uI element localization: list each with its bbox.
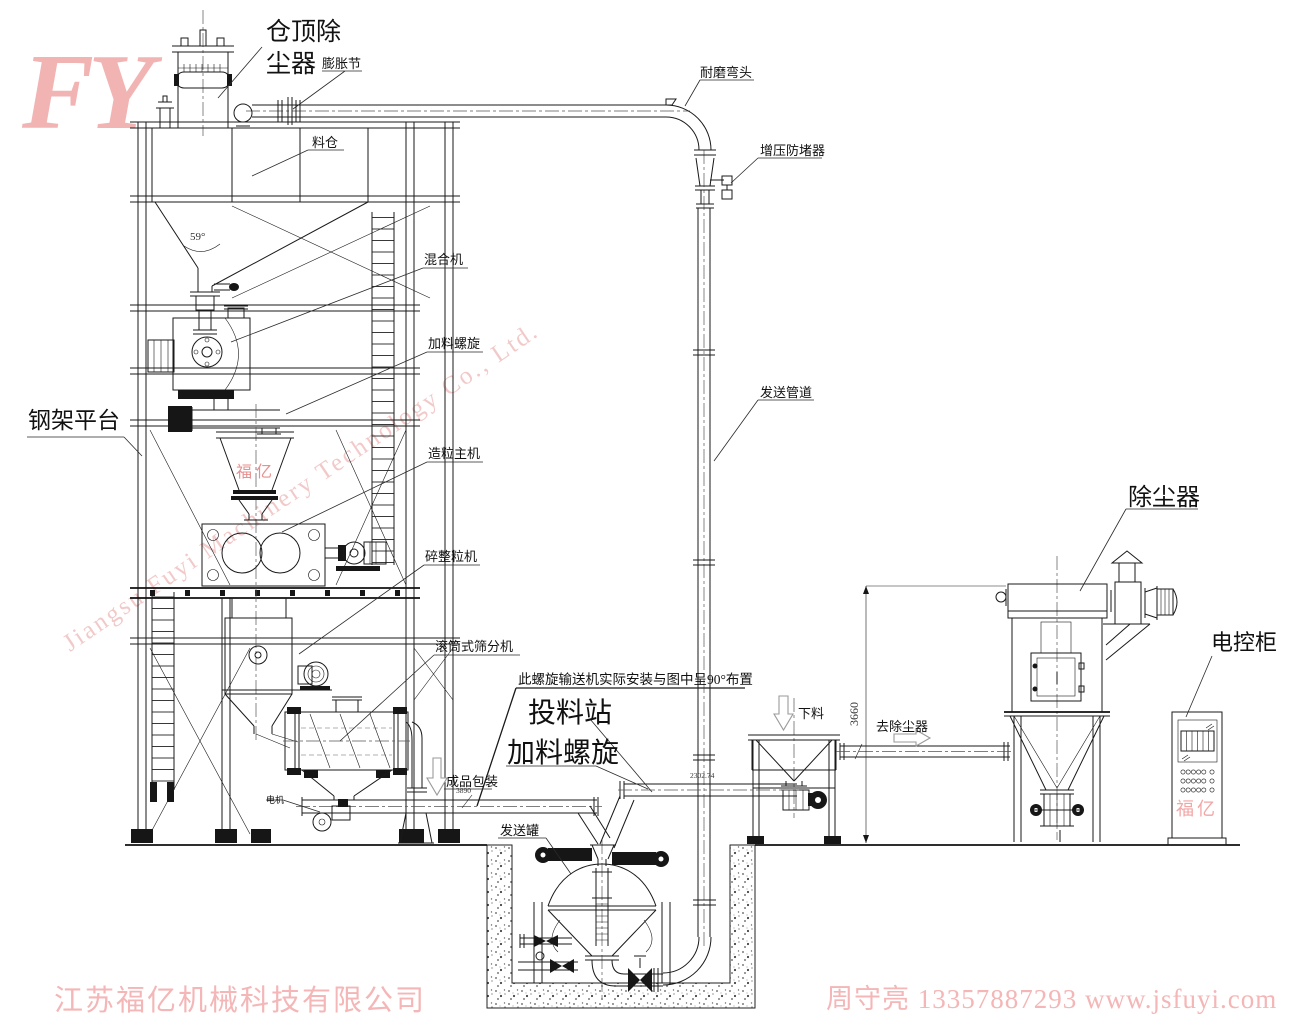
ladder-lower [150,592,174,802]
dimension-3660: 3660 [847,586,1006,843]
label-expansion-joint: 膨胀节 [322,56,361,71]
label-finished-packing: 成品包装 [446,774,498,789]
ladder-upper [372,212,394,565]
label-discharge-down: 下料 [798,706,824,721]
discharge-arrow-icon [774,696,793,730]
conveying-pipe [234,97,732,985]
label-wear-elbow: 耐磨弯头 [700,65,752,80]
dim-conveyor-b: 2302.74 [690,771,715,780]
label-dust-collector: 除尘器 [1128,484,1200,511]
label-conveying-pipe: 发送管道 [760,385,812,400]
label-anti-blocker: 增压防堵器 [760,143,825,158]
crusher-sizer [222,598,332,748]
cone-angle-label: 59° [190,231,205,243]
dim-3660: 3660 [847,702,861,726]
label-steel-platform: 钢架平台 [28,408,120,433]
packing-arrow-icon [427,758,447,795]
cabinet-buttons [1181,770,1214,792]
drum-screener [283,697,410,800]
silo-top-dust-collector [156,10,234,136]
control-cabinet: 福亿 [1168,712,1226,845]
label-drum-screener: 滚筒式筛分机 [435,639,513,654]
label-feed-screw-upper: 加料螺旋 [428,336,480,351]
label-sending-tank: 发送罐 [500,823,539,838]
cad-drawing: FY Jiangsu Fuyi Machinery Technology Co.… [0,0,1303,1026]
label-screw-note: 此螺旋输送机实际安装与图中呈90°布置 [518,672,753,687]
dust-collector [996,551,1177,842]
feed-screw-upper [168,406,281,438]
material-silo: 59° [152,128,368,334]
label-silo-top-dc-1: 仓顶除 [266,18,341,46]
label-material-silo: 料仓 [312,135,338,150]
label-granulator: 造粒主机 [428,446,480,461]
column-feet [131,829,460,843]
brand-watermark-hopper: 福亿 [236,463,276,481]
label-mixer: 混合机 [424,252,463,267]
label-feeding-station: 投料站 [528,697,612,729]
drawing-page: FY Jiangsu Fuyi Machinery Technology Co.… [0,0,1303,1026]
label-to-dust-collector: 去除尘器 [876,719,928,734]
label-motor: 电机 [266,794,284,805]
fy-logo: FY [21,33,163,152]
brand-watermark-cabinet: 福亿 [1176,799,1218,819]
duct-to-dust-collector [836,730,1014,761]
footer-contact: 周守亮 13357887293 www.jsfuyi.com [826,984,1277,1014]
footer-company: 江苏福亿机械科技有限公司 [54,984,426,1017]
sending-tank [518,796,676,1000]
label-feed-screw-lower: 加料螺旋 [507,737,619,769]
label-silo-top-dc-2: 尘器 [266,50,316,78]
platform-bolts [150,590,400,596]
label-crusher: 碎整粒机 [425,549,477,564]
label-control-cabinet: 电控柜 [1211,630,1277,655]
pit [487,845,755,1008]
feeding-station [747,696,841,844]
